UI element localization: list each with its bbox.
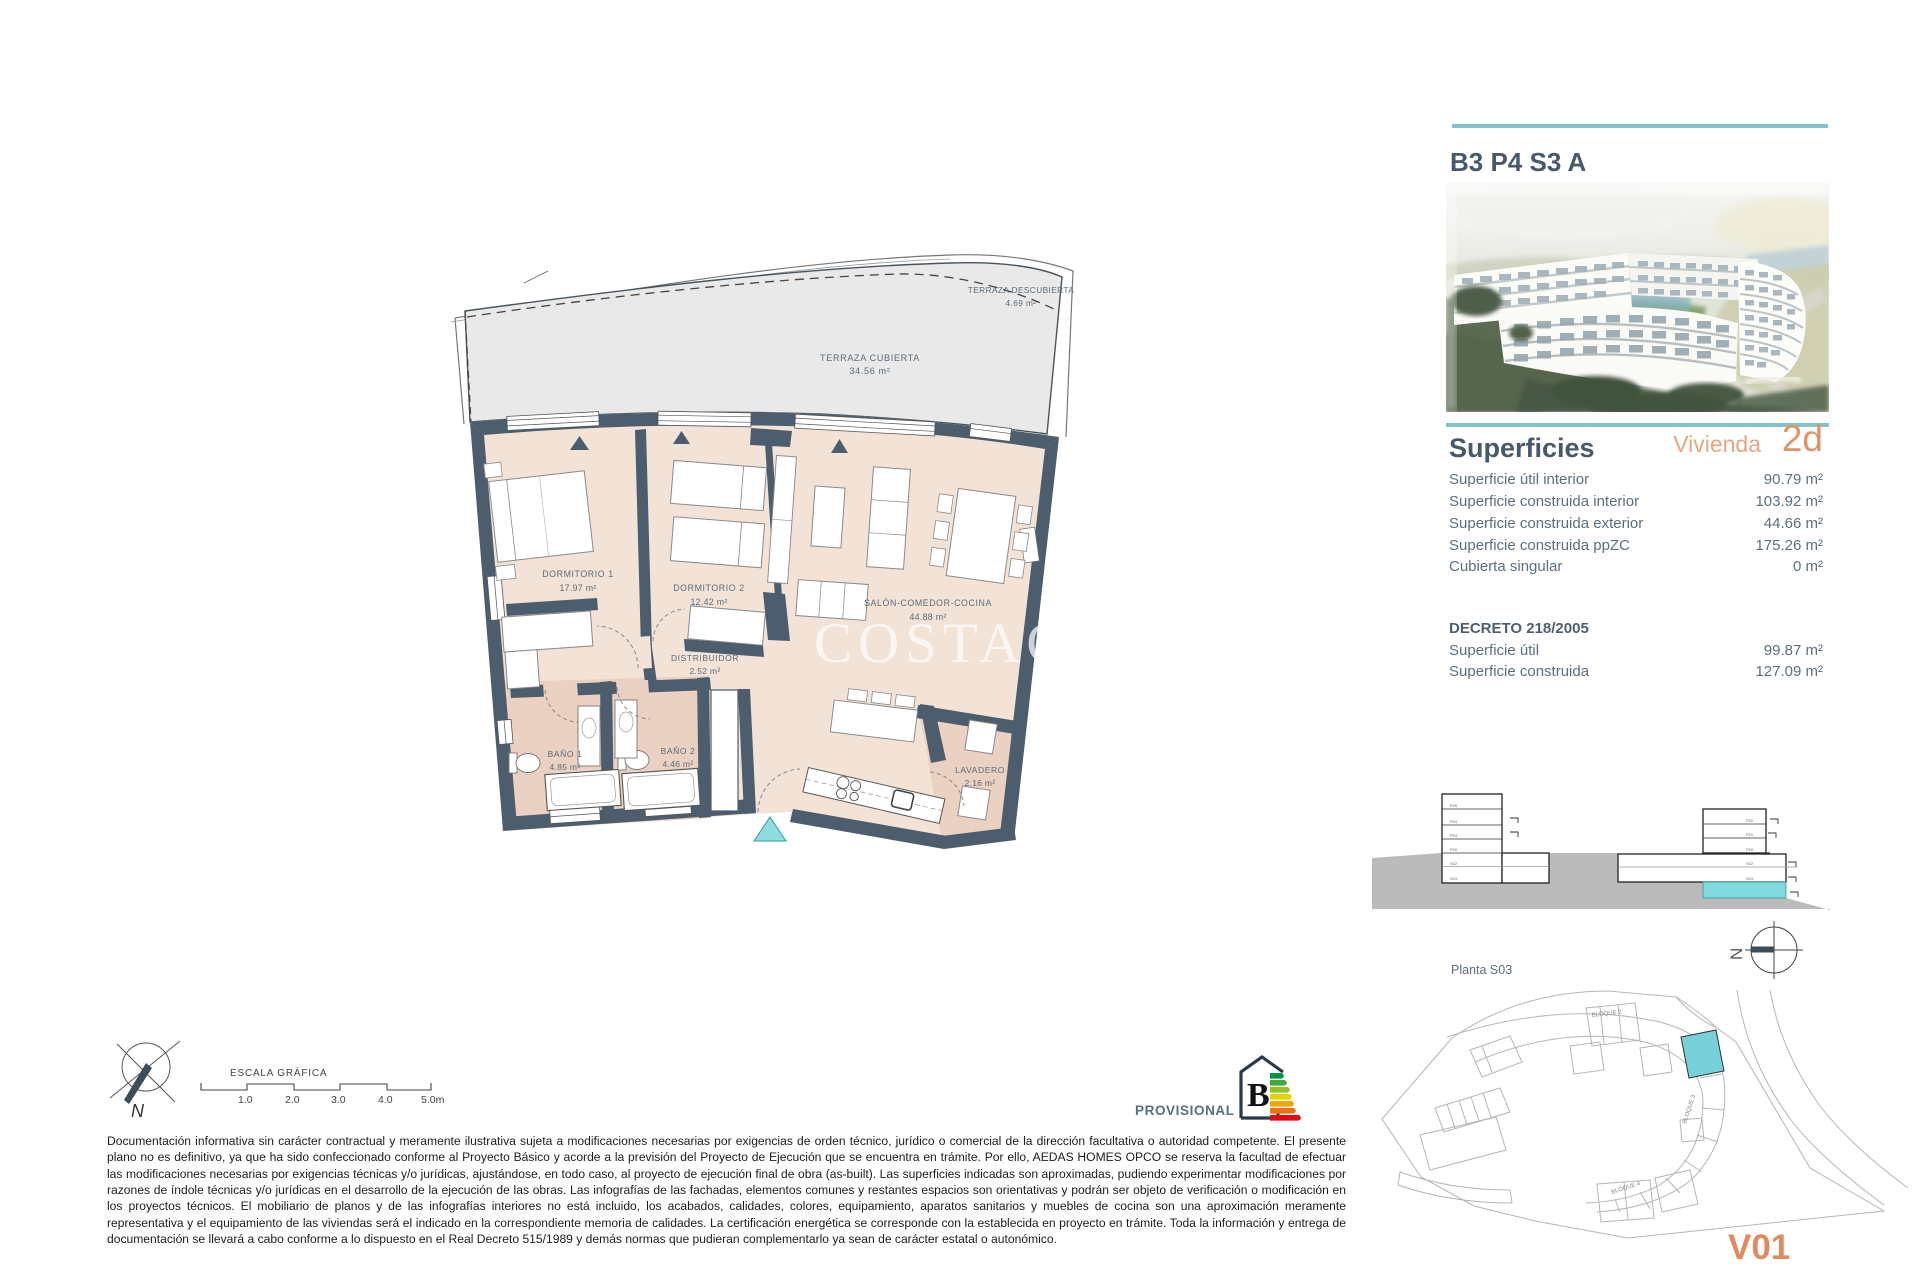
svg-text:BLOQUE 3: BLOQUE 3 — [1682, 1094, 1697, 1125]
svg-text:S02: S02 — [1450, 861, 1458, 866]
svg-text:DORMITORIO 2: DORMITORIO 2 — [673, 583, 745, 593]
svg-text:4.69 m²: 4.69 m² — [1006, 298, 1037, 308]
svg-text:S03: S03 — [1450, 876, 1458, 881]
svg-text:TERRAZA DESCUBIERTA: TERRAZA DESCUBIERTA — [968, 285, 1074, 295]
svg-text:TERRAZA CUBIERTA: TERRAZA CUBIERTA — [820, 353, 920, 363]
svg-text:DISTRIBUIDOR: DISTRIBUIDOR — [671, 653, 739, 663]
svg-text:P05: P05 — [1450, 803, 1458, 808]
svg-text:ES: ES — [1042, 650, 1081, 683]
svg-text:P03: P03 — [1450, 833, 1458, 838]
svg-text:P01: P01 — [1746, 832, 1754, 837]
svg-text:4.85 m²: 4.85 m² — [550, 762, 581, 772]
svg-text:DORMITORIO 1: DORMITORIO 1 — [542, 569, 614, 579]
svg-text:B: B — [1247, 1077, 1270, 1114]
svg-text:2.52 m²: 2.52 m² — [690, 666, 721, 676]
svg-text:5.0m: 5.0m — [421, 1094, 445, 1106]
svg-text:1.0: 1.0 — [238, 1094, 253, 1106]
svg-text:P04: P04 — [1450, 819, 1458, 824]
svg-text:S02: S02 — [1746, 861, 1754, 866]
svg-text:17.97 m²: 17.97 m² — [559, 583, 596, 593]
svg-text:SALÓN-COMEDOR-COCINA: SALÓN-COMEDOR-COCINA — [864, 598, 992, 608]
svg-text:N: N — [1727, 948, 1746, 960]
svg-text:S03: S03 — [1746, 876, 1754, 881]
svg-text:12.42 m²: 12.42 m² — [690, 597, 727, 607]
svg-text:N: N — [131, 1101, 145, 1121]
svg-text:BAÑO 1: BAÑO 1 — [548, 749, 583, 759]
svg-text:P02: P02 — [1746, 818, 1754, 823]
svg-text:2.0: 2.0 — [285, 1094, 300, 1106]
svg-text:P00: P00 — [1450, 847, 1458, 852]
svg-text:P00: P00 — [1746, 847, 1754, 852]
svg-text:BAÑO 2: BAÑO 2 — [661, 746, 696, 756]
svg-text:3.0: 3.0 — [331, 1094, 346, 1106]
svg-text:LAVADERO: LAVADERO — [955, 765, 1005, 775]
svg-text:4.0: 4.0 — [378, 1094, 393, 1106]
svg-text:COSTAG: COSTAG — [814, 612, 1073, 675]
svg-text:ESCALA GRÁFICA: ESCALA GRÁFICA — [230, 1066, 327, 1079]
svg-text:2.16 m²: 2.16 m² — [965, 778, 996, 788]
svg-text:BLOQUE 2: BLOQUE 2 — [1592, 1009, 1623, 1019]
svg-text:34.56 m²: 34.56 m² — [849, 366, 890, 376]
svg-text:4.46 m²: 4.46 m² — [663, 759, 694, 769]
